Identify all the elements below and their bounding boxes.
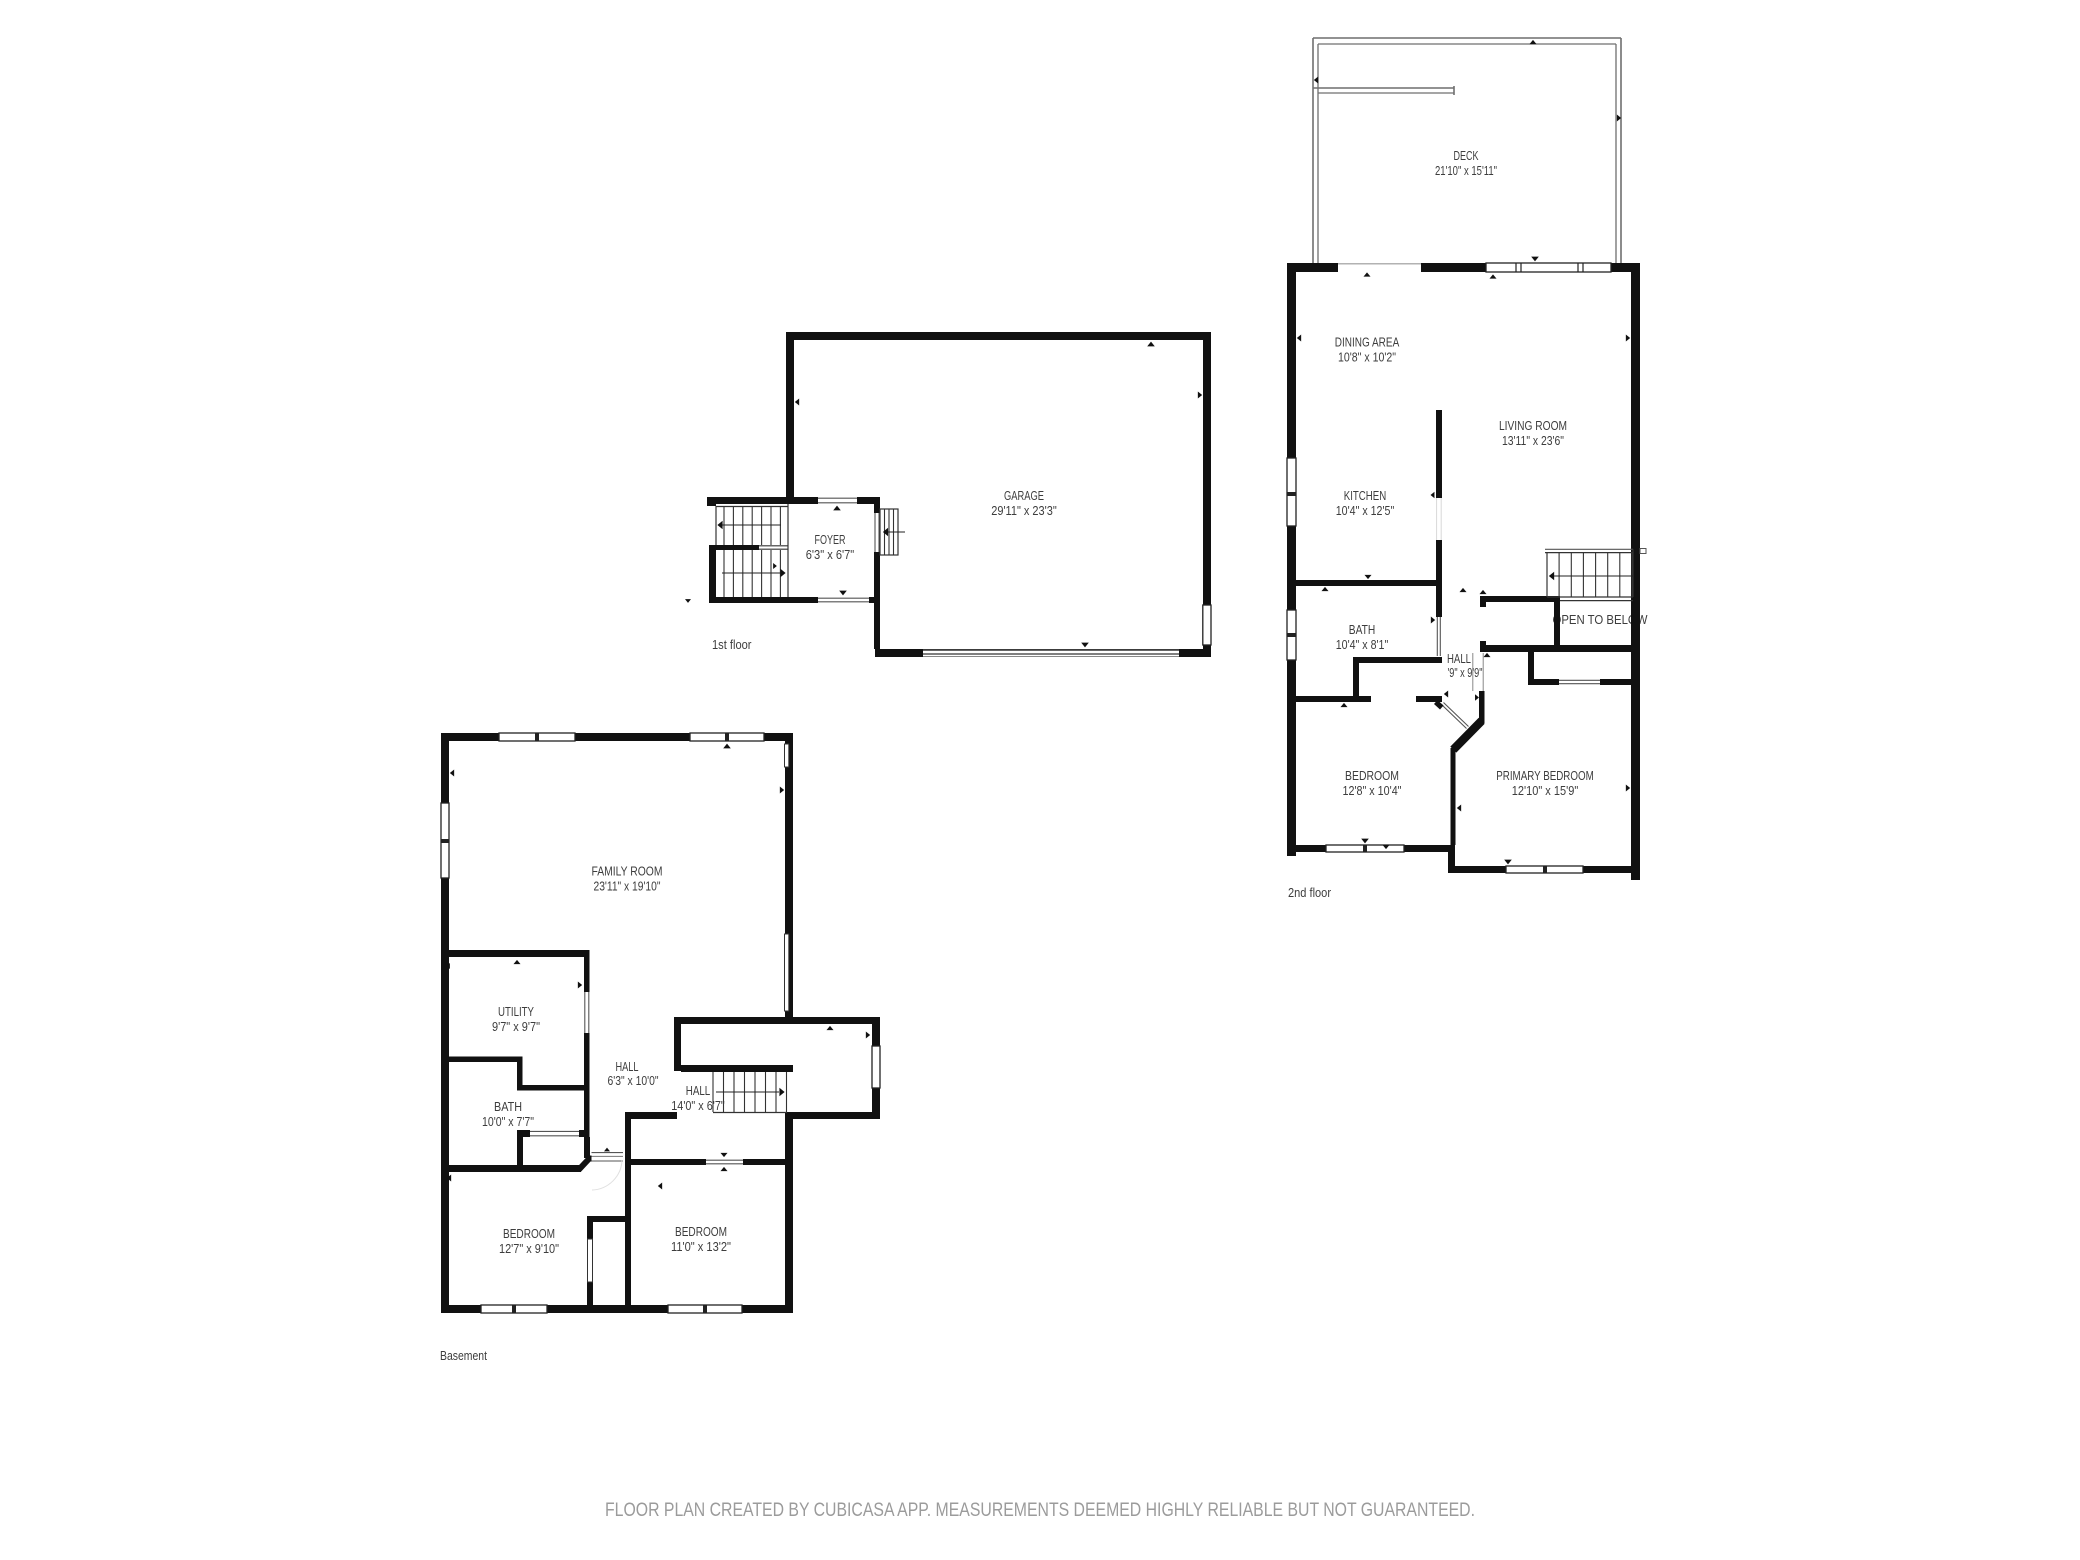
svg-text:BEDROOM: BEDROOM: [503, 1227, 555, 1241]
svg-text:BATH: BATH: [1349, 623, 1376, 637]
svg-text:10'4" x 8'1": 10'4" x 8'1": [1336, 638, 1389, 652]
svg-text:1st floor: 1st floor: [712, 637, 752, 652]
svg-text:FOYER: FOYER: [815, 533, 846, 547]
svg-text:23'11" x 19'10": 23'11" x 19'10": [594, 880, 661, 894]
svg-text:HALL: HALL: [686, 1084, 711, 1098]
svg-text:10'0" x 7'7": 10'0" x 7'7": [482, 1115, 534, 1129]
svg-text:12'10" x 15'9": 12'10" x 15'9": [1512, 784, 1579, 798]
svg-text:BEDROOM: BEDROOM: [1345, 769, 1399, 783]
svg-text:FLOOR PLAN CREATED BY CUBICASA: FLOOR PLAN CREATED BY CUBICASA APP. MEAS…: [605, 1499, 1475, 1521]
svg-text:HALL: HALL: [1447, 652, 1471, 666]
svg-text:BEDROOM: BEDROOM: [675, 1225, 727, 1239]
svg-text:FAMILY ROOM: FAMILY ROOM: [592, 865, 663, 879]
svg-text:LIVING ROOM: LIVING ROOM: [1499, 419, 1567, 433]
svg-text:6'3" x 10'0": 6'3" x 10'0": [608, 1074, 659, 1088]
svg-text:2nd floor: 2nd floor: [1288, 885, 1332, 900]
svg-text:10'8" x 10'2": 10'8" x 10'2": [1338, 351, 1396, 365]
svg-text:BATH: BATH: [494, 1100, 522, 1114]
svg-text:HALL: HALL: [616, 1060, 639, 1074]
svg-text:9'7" x 9'7": 9'7" x 9'7": [492, 1020, 540, 1034]
svg-text:29'11" x 23'3": 29'11" x 23'3": [991, 504, 1057, 518]
svg-text:DINING AREA: DINING AREA: [1335, 336, 1400, 350]
svg-text:14'0" x 6'7": 14'0" x 6'7": [671, 1099, 725, 1113]
svg-text:21'10" x 15'11": 21'10" x 15'11": [1435, 164, 1497, 178]
svg-text:PRIMARY BEDROOM: PRIMARY BEDROOM: [1496, 769, 1594, 783]
svg-text:Basement: Basement: [440, 1348, 487, 1363]
svg-text:11'0" x 13'2": 11'0" x 13'2": [671, 1240, 731, 1254]
svg-text:'9" x 9'9": '9" x 9'9": [1448, 666, 1483, 680]
svg-text:UTILITY: UTILITY: [498, 1005, 535, 1019]
svg-text:13'11" x 23'6": 13'11" x 23'6": [1502, 434, 1564, 448]
svg-text:DECK: DECK: [1454, 149, 1479, 163]
svg-text:GARAGE: GARAGE: [1004, 489, 1044, 503]
svg-text:12'7" x 9'10": 12'7" x 9'10": [499, 1242, 559, 1256]
svg-text:12'8" x 10'4": 12'8" x 10'4": [1343, 784, 1402, 798]
svg-text:6'3" x 6'7": 6'3" x 6'7": [806, 548, 855, 562]
svg-text:10'4" x 12'5": 10'4" x 12'5": [1336, 504, 1395, 518]
svg-text:KITCHEN: KITCHEN: [1344, 489, 1387, 503]
